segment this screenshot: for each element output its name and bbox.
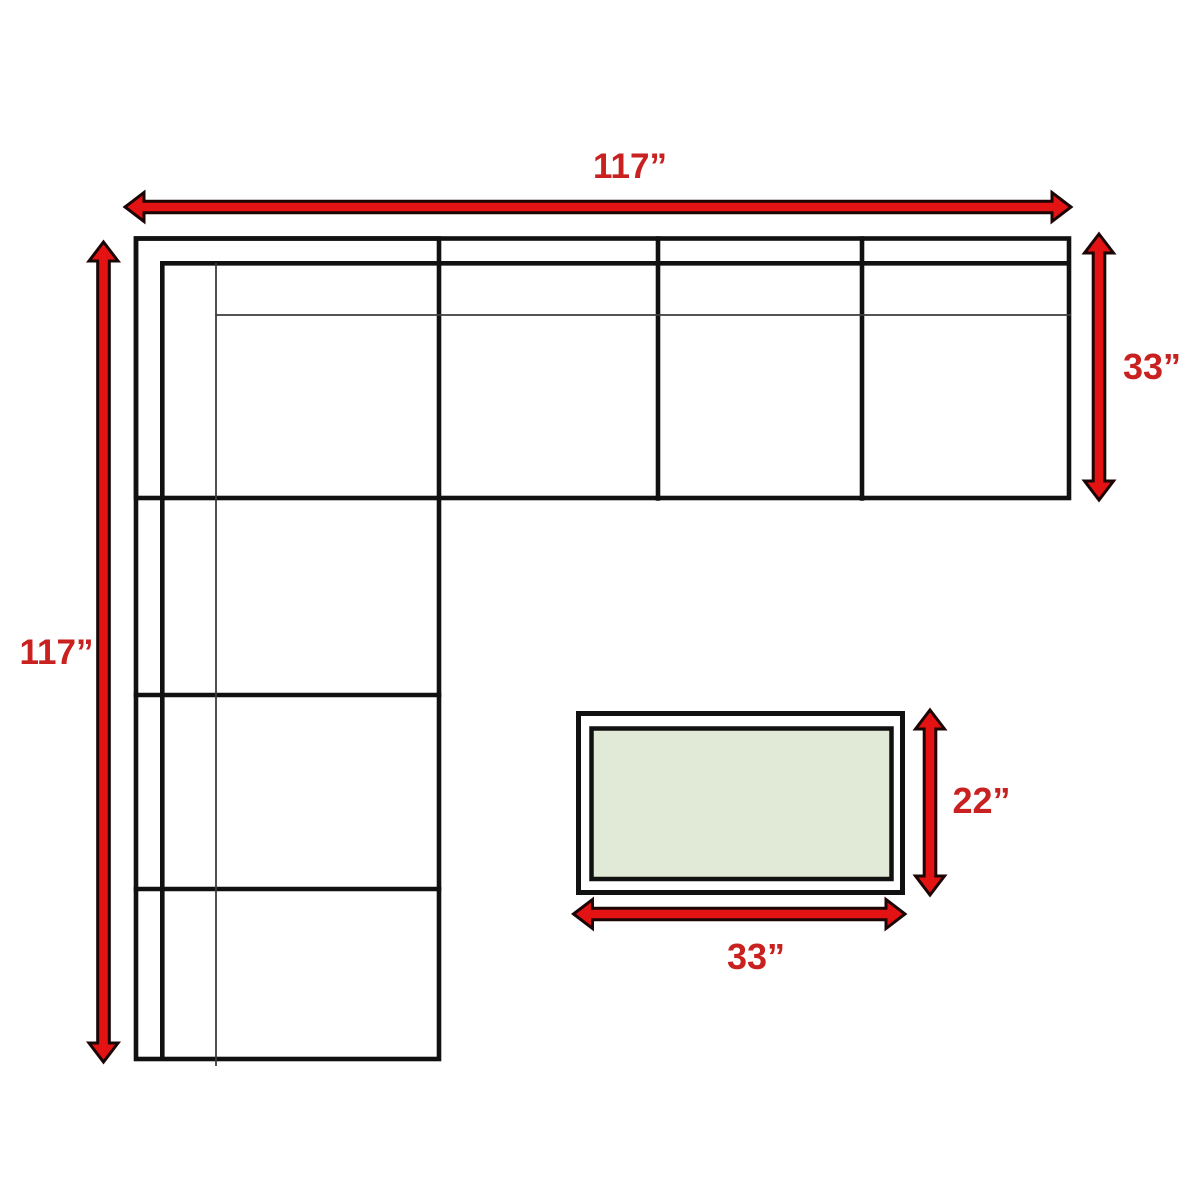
- svg-text:33”: 33”: [1123, 346, 1181, 387]
- svg-text:33”: 33”: [727, 936, 785, 977]
- svg-text:117”: 117”: [20, 633, 94, 672]
- svg-text:117”: 117”: [593, 147, 667, 186]
- svg-text:22”: 22”: [952, 780, 1010, 821]
